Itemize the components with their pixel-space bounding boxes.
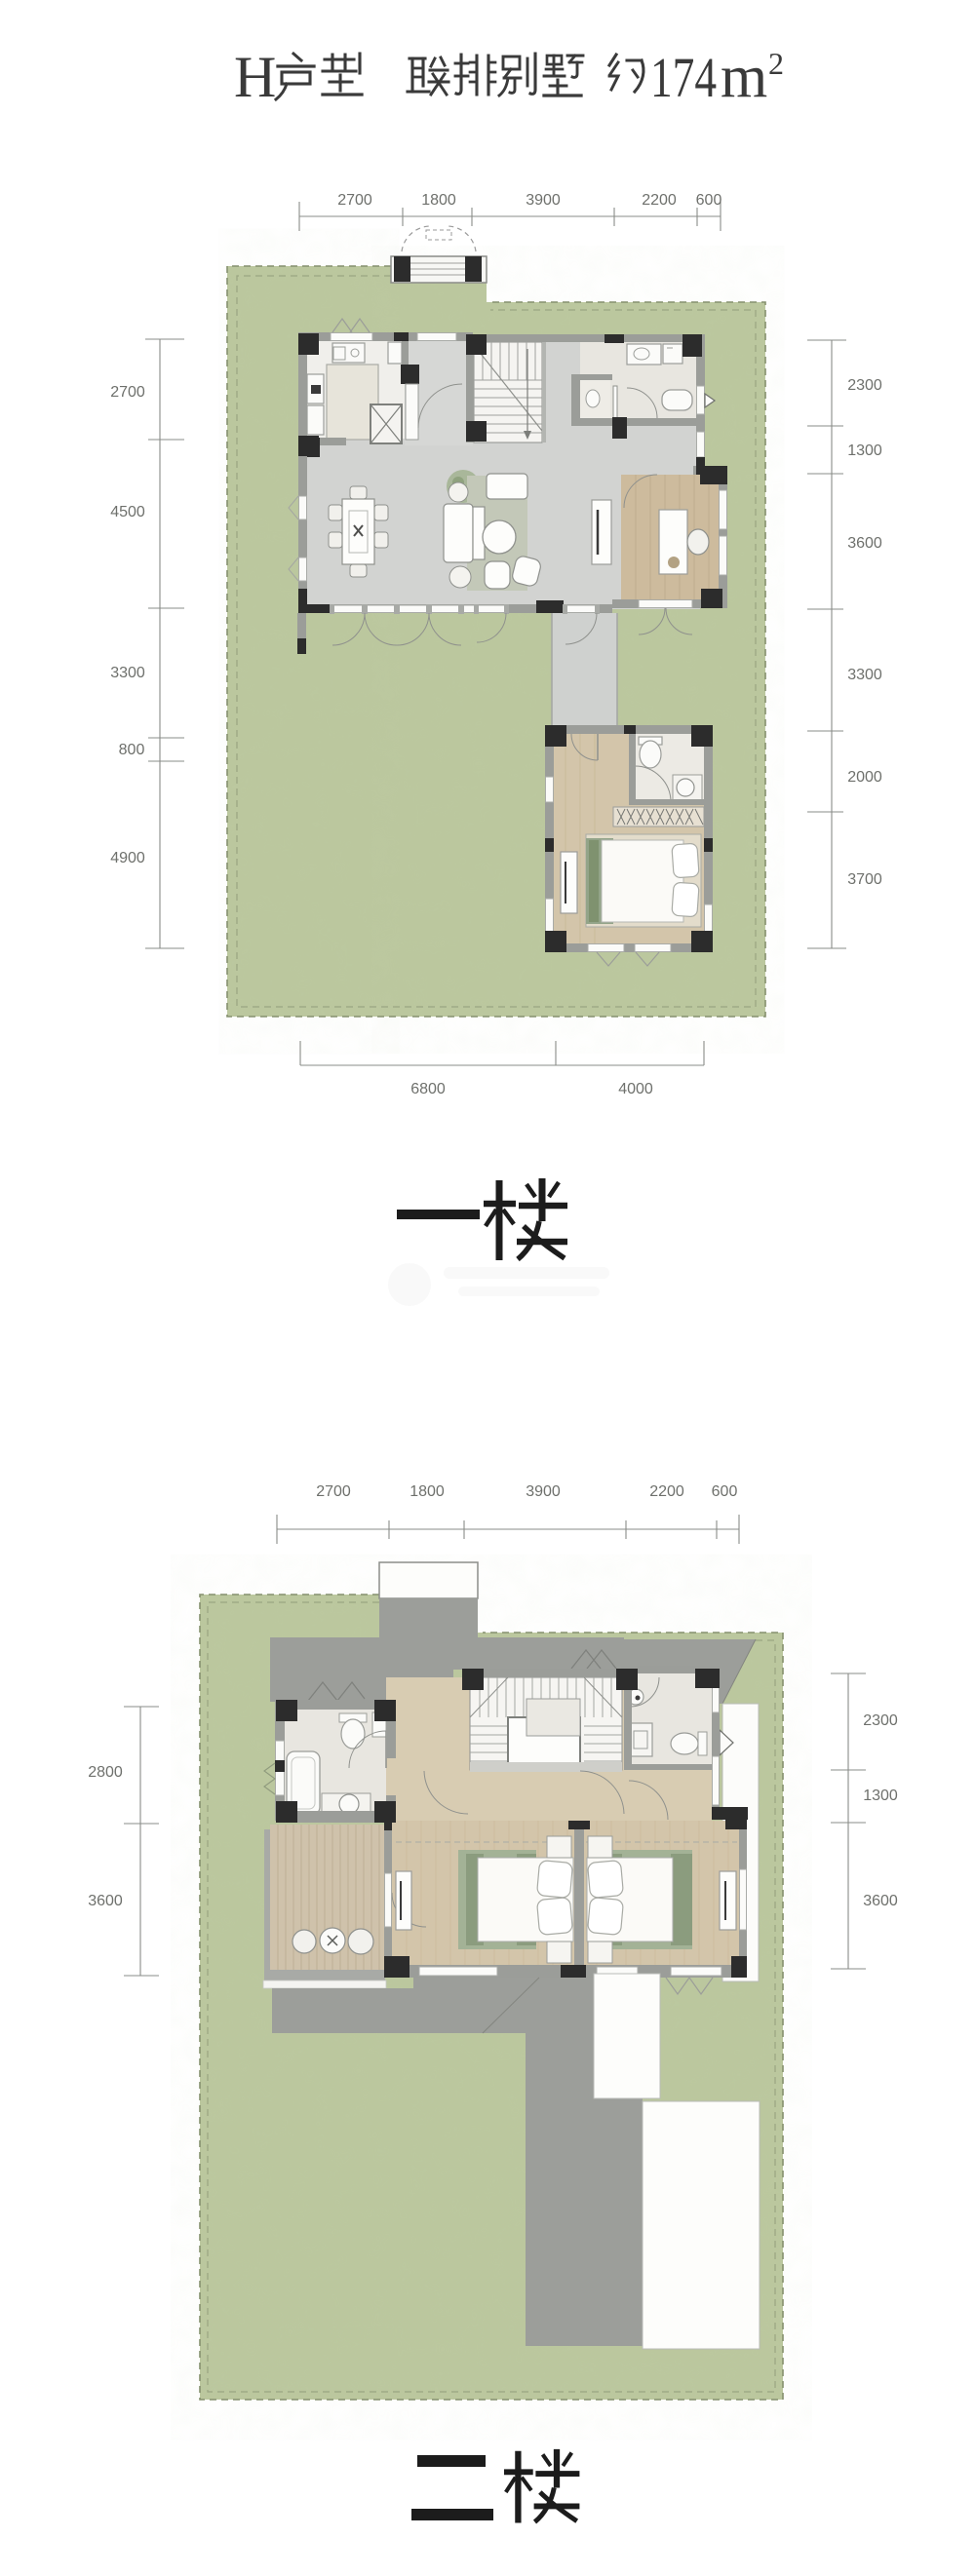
svg-text:H: H (234, 45, 276, 109)
svg-text:6800: 6800 (410, 1081, 446, 1097)
svg-text:2800: 2800 (88, 1764, 123, 1781)
svg-text:m: m (721, 44, 767, 110)
svg-text:3300: 3300 (847, 667, 882, 683)
svg-text:2: 2 (768, 46, 784, 81)
svg-text:3600: 3600 (847, 535, 882, 552)
svg-text:3600: 3600 (863, 1893, 898, 1909)
svg-text:3900: 3900 (526, 1483, 561, 1500)
svg-text:2700: 2700 (337, 192, 372, 209)
svg-text:4000: 4000 (618, 1081, 653, 1097)
svg-text:600: 600 (712, 1483, 738, 1500)
svg-text:2700: 2700 (316, 1483, 351, 1500)
svg-text:2700: 2700 (110, 384, 145, 401)
svg-text:3600: 3600 (88, 1893, 123, 1909)
svg-text:4500: 4500 (110, 504, 145, 520)
svg-text:800: 800 (119, 742, 145, 758)
svg-text:1300: 1300 (863, 1788, 898, 1804)
svg-text:174: 174 (650, 46, 717, 109)
svg-text:3300: 3300 (110, 665, 145, 681)
svg-text:2200: 2200 (649, 1483, 684, 1500)
svg-text:600: 600 (696, 192, 722, 209)
svg-text:1800: 1800 (421, 192, 456, 209)
svg-text:2000: 2000 (847, 769, 882, 786)
svg-text:2300: 2300 (847, 377, 882, 394)
svg-text:1300: 1300 (847, 442, 882, 459)
svg-text:2300: 2300 (863, 1712, 898, 1729)
svg-text:3700: 3700 (847, 871, 882, 888)
svg-text:3900: 3900 (526, 192, 561, 209)
svg-text:2200: 2200 (642, 192, 677, 209)
svg-text:1800: 1800 (409, 1483, 445, 1500)
svg-text:4900: 4900 (110, 850, 145, 866)
